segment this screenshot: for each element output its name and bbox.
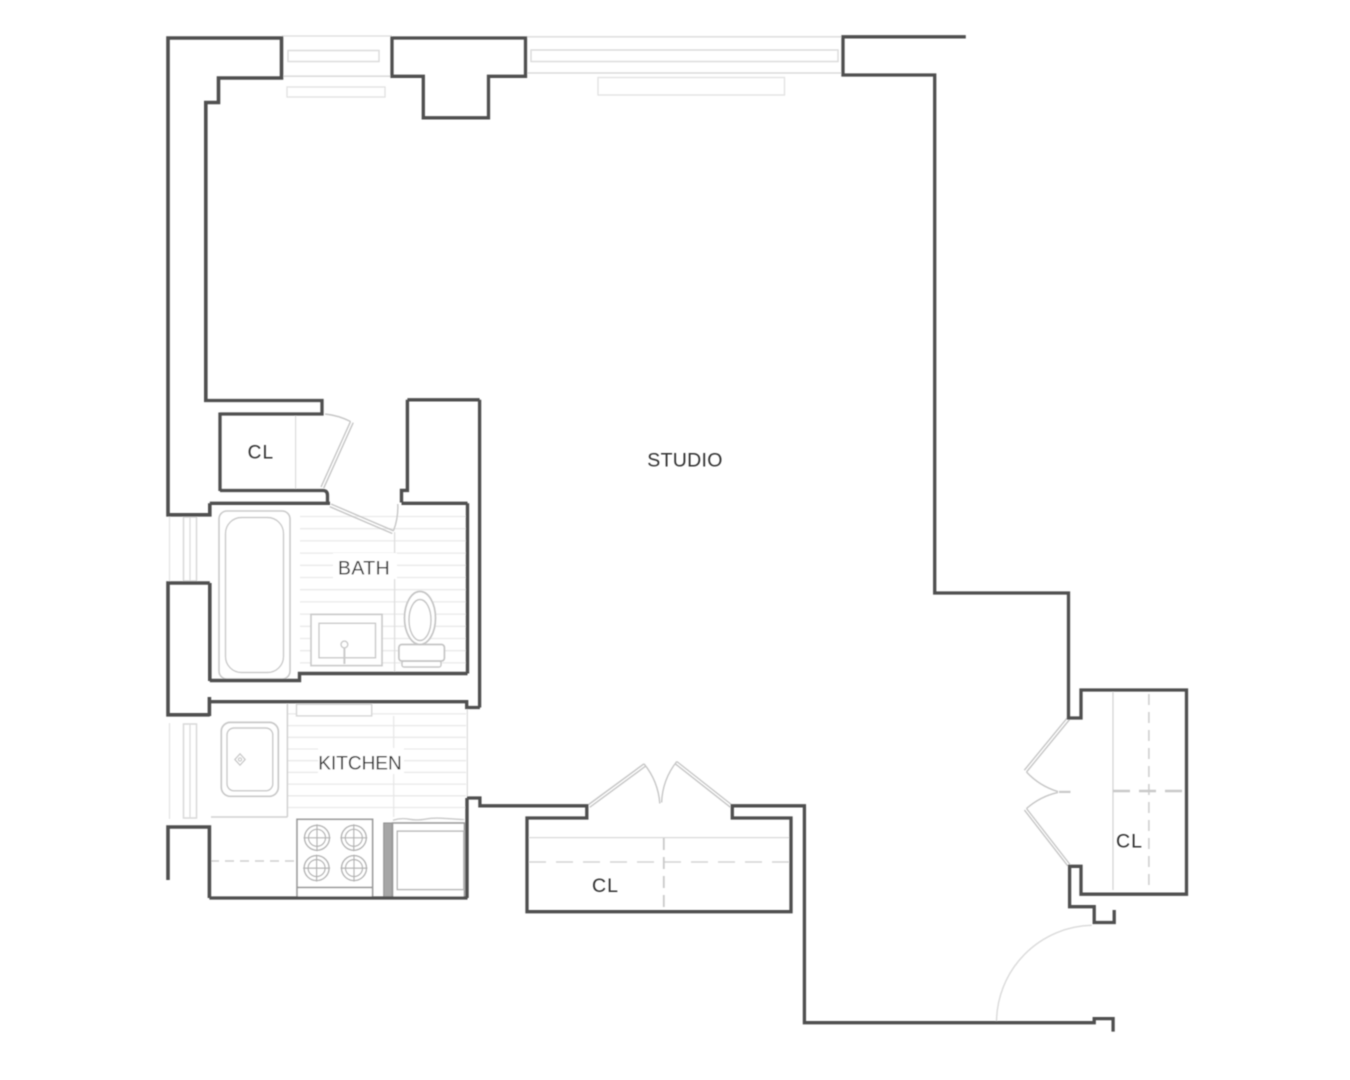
svg-text:STUDIO: STUDIO [647, 450, 722, 472]
svg-text:CL: CL [592, 875, 619, 897]
svg-text:CL: CL [1116, 831, 1143, 853]
svg-text:KITCHEN: KITCHEN [318, 754, 401, 775]
svg-text:CL: CL [248, 443, 275, 464]
svg-text:BATH: BATH [338, 558, 390, 580]
